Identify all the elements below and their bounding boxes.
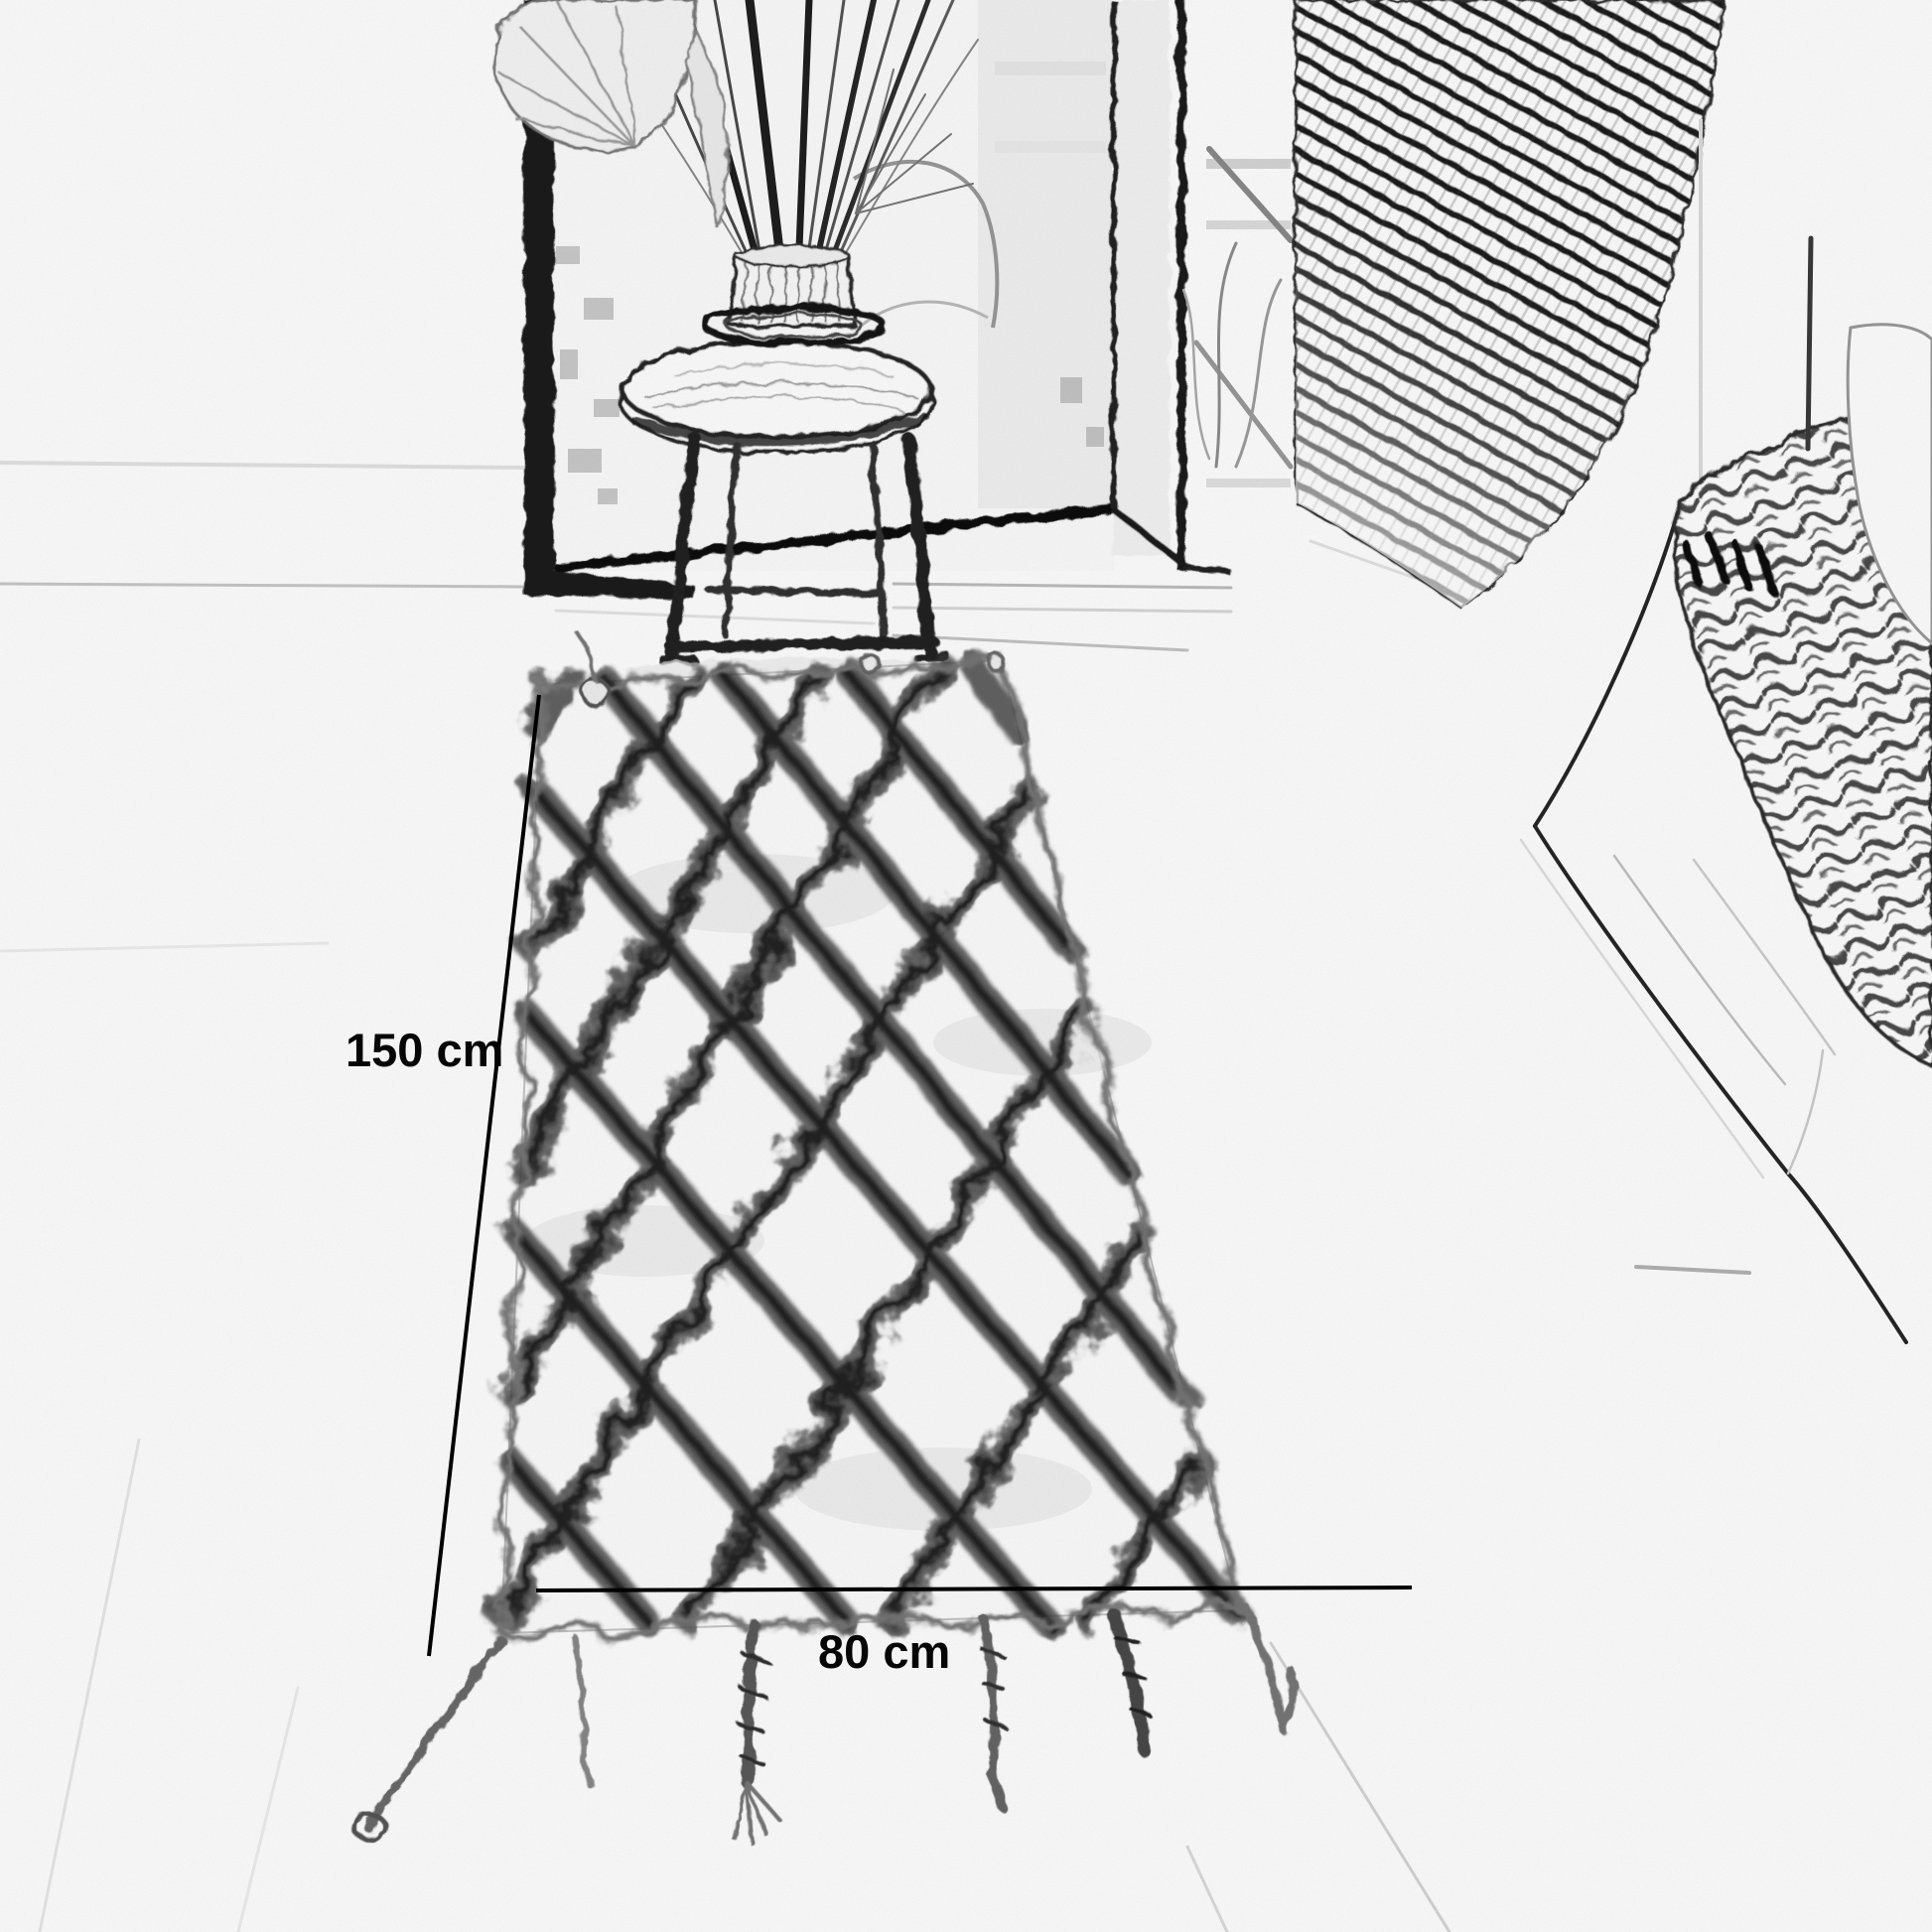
length-dimension-label: 150 cm bbox=[345, 1023, 503, 1077]
sketch-room-photo: 150 cm 80 cm bbox=[0, 0, 1932, 1932]
width-dimension-label: 80 cm bbox=[818, 1624, 950, 1679]
scene-drawing bbox=[0, 0, 1932, 1932]
paper-grain-overlay bbox=[0, 0, 1932, 1932]
